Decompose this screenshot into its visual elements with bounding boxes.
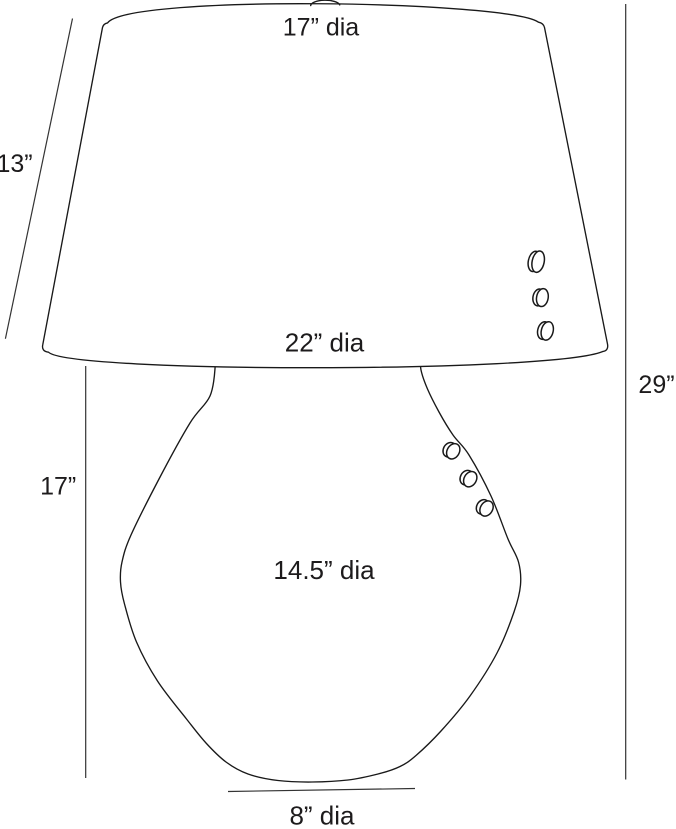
svg-text:17” dia: 17” dia bbox=[283, 14, 360, 42]
svg-text:29”: 29” bbox=[638, 371, 674, 399]
svg-text:8” dia: 8” dia bbox=[289, 801, 355, 829]
svg-text:17”: 17” bbox=[40, 472, 76, 500]
svg-text:14.5” dia: 14.5” dia bbox=[273, 555, 375, 585]
svg-text:22” dia: 22” dia bbox=[285, 328, 365, 358]
svg-text:13”: 13” bbox=[0, 150, 33, 178]
